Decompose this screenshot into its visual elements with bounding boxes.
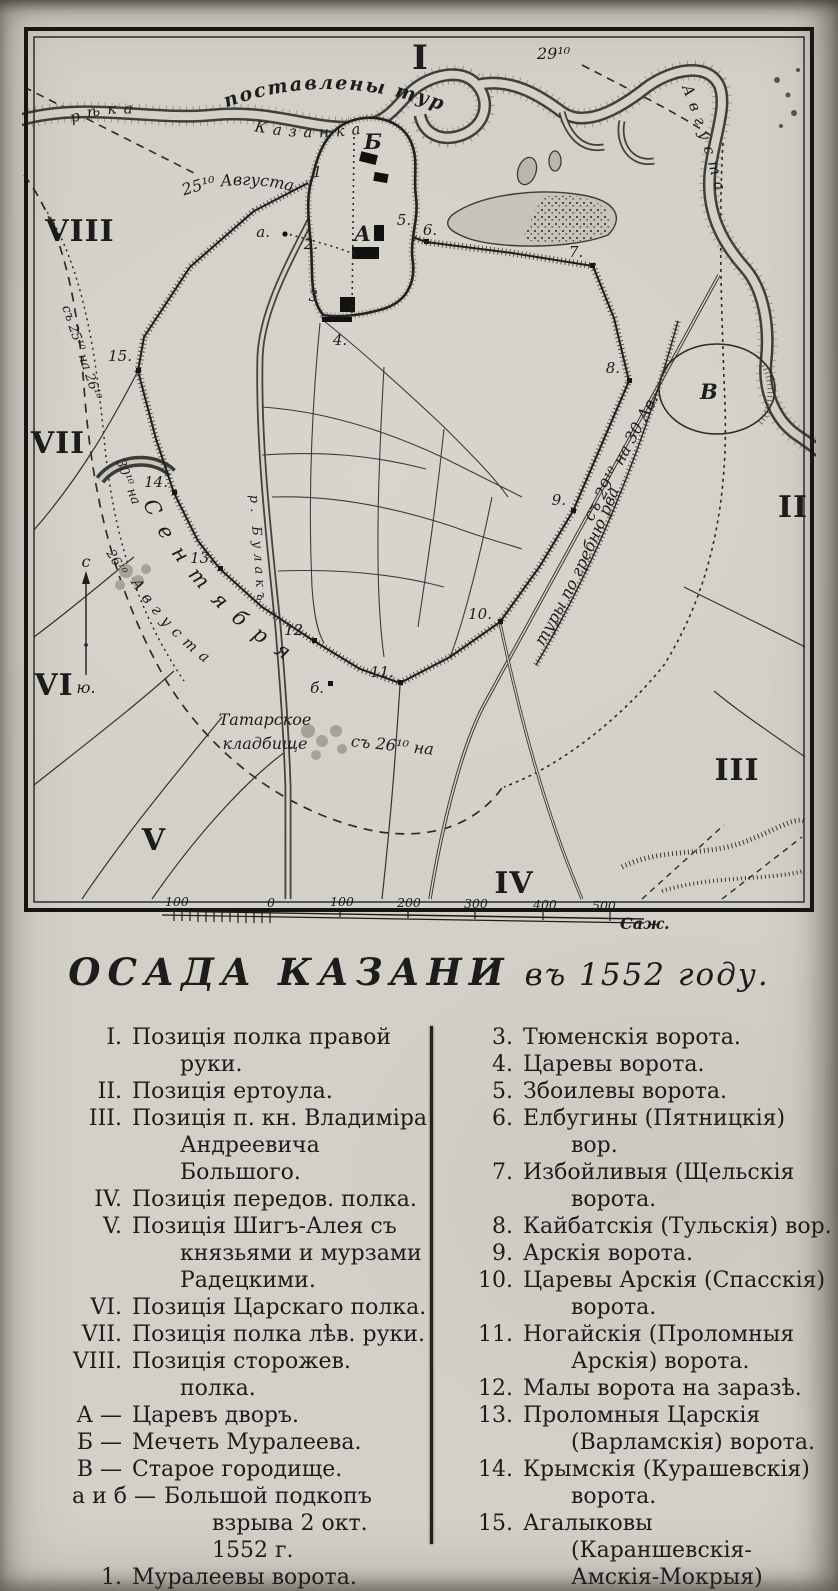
legend-item-text: Позиція ертоула. xyxy=(122,1078,333,1105)
legend-item-key: 14. xyxy=(447,1456,513,1510)
legend-item-key: III. xyxy=(56,1105,122,1186)
gate-4: 4. xyxy=(332,331,347,349)
gate-11: 11. xyxy=(370,663,394,681)
mark-mine-a: а. xyxy=(256,223,270,241)
siege-map: поставлены туры рѣка Казанка 29¹⁰ Август… xyxy=(22,25,816,940)
legend-item: 14.Крымскія (Курашевскія) ворота. xyxy=(447,1456,838,1510)
scale-tick-0: 0 xyxy=(267,895,275,910)
gate-5: 5. xyxy=(397,211,411,229)
legend-item: а и б —Большой подкопъ взрыва 2 окт. 155… xyxy=(56,1483,430,1564)
legend-item-text: Позиція п. кн. Владиміра Андреевича Боль… xyxy=(122,1105,430,1186)
legend-item-key: 8. xyxy=(447,1213,513,1240)
legend-item-key: Б — xyxy=(56,1429,122,1456)
gate-6: 6. xyxy=(423,221,437,239)
legend-item: 11.Ногайскія (Проломныя Арскія) ворота. xyxy=(447,1321,838,1375)
legend: I.Позиція полка правой руки.II.Позиція е… xyxy=(56,1024,838,1591)
scale-tick-500: 500 xyxy=(592,898,616,913)
legend-item-text: Царевы ворота. xyxy=(513,1051,705,1078)
legend-item: VIII.Позиція сторожев. полка. xyxy=(56,1348,430,1402)
legend-item-text: Арскія ворота. xyxy=(513,1240,693,1267)
legend-item: 7.Избойливыя (Щельскія ворота. xyxy=(447,1159,838,1213)
label-postavleny-tury: поставлены туры xyxy=(22,25,449,115)
legend-item-key: I. xyxy=(56,1024,122,1078)
legend-item-text: Ногайскія (Проломныя Арскія) ворота. xyxy=(513,1321,838,1375)
svg-text:поставлены туры: поставлены туры xyxy=(22,25,449,115)
gate-3: 3 xyxy=(308,287,318,305)
mark-V: В xyxy=(699,379,718,404)
legend-item-text: Малы ворота на заразѣ. xyxy=(513,1375,802,1402)
legend-item: V.Позиція Шигъ-Алея съ князьями и мурзам… xyxy=(56,1213,430,1294)
legend-item-text: Избойливыя (Щельскія ворота. xyxy=(513,1159,838,1213)
numeral-VIII: VIII xyxy=(44,214,114,249)
label-tatar-cemetery-2: кладбище xyxy=(223,734,308,753)
legend-item: 3.Тюменскія ворота. xyxy=(447,1024,838,1051)
legend-item-key: 3. xyxy=(447,1024,513,1051)
gate-13: 13. xyxy=(190,549,214,567)
legend-item: VI.Позиція Царскаго полка. xyxy=(56,1294,430,1321)
svg-text:съ 29¹⁰ на 30 Ав.: съ 29¹⁰ на 30 Ав. xyxy=(579,391,662,524)
label-reka: рѣка xyxy=(68,99,141,126)
numeral-V: V xyxy=(141,823,166,858)
legend-item: I.Позиція полка правой руки. xyxy=(56,1024,430,1078)
legend-item-text: Позиція сторожев. полка. xyxy=(122,1348,430,1402)
label-date-29: 29¹⁰ xyxy=(536,44,571,63)
legend-right: 3.Тюменскія ворота.4.Царевы ворота.5.Збо… xyxy=(433,1024,838,1591)
gate-1: 1 xyxy=(312,163,322,181)
legend-item: 1.Муралеевы ворота. xyxy=(56,1564,430,1591)
scale-tick-100l: 100 xyxy=(165,894,189,909)
gate-10: 10. xyxy=(468,605,492,623)
scale-unit: Саж. xyxy=(620,914,670,933)
legend-item-key: IV. xyxy=(56,1186,122,1213)
legend-item-key: 6. xyxy=(447,1105,513,1159)
mark-mine-b: б. xyxy=(310,679,324,697)
scale-bar: 100 0 100 200 300 400 500 Саж. xyxy=(162,894,670,933)
scale-tick-200: 200 xyxy=(396,895,421,910)
page-title-main: ОСАДА КАЗАНИ xyxy=(68,950,510,994)
gate-8: 8. xyxy=(606,359,620,377)
legend-item-text: Крымскія (Курашевскія) ворота. xyxy=(513,1456,838,1510)
legend-item-text: Большой подкопъ взрыва 2 окт. 1552 г. xyxy=(156,1483,430,1564)
gate-14: 14. xyxy=(144,473,168,491)
page-title-year: въ 1552 году. xyxy=(511,957,770,993)
gate-12: 12. xyxy=(284,621,308,639)
legend-item: 12.Малы ворота на заразѣ. xyxy=(447,1375,838,1402)
legend-item-key: II. xyxy=(56,1078,122,1105)
legend-item-text: Агалыковы (Караншевскія-Амскія-Мокрыя) в… xyxy=(513,1510,838,1591)
legend-left: I.Позиція полка правой руки.II.Позиція е… xyxy=(56,1024,430,1591)
legend-item-key: 5. xyxy=(447,1078,513,1105)
legend-item-text: Позиція Царскаго полка. xyxy=(122,1294,426,1321)
legend-item-key: а и б — xyxy=(56,1483,156,1564)
scale-tick-400: 400 xyxy=(532,897,557,912)
label-sentyabrya: Сентября xyxy=(138,495,307,672)
gate-7: 7. xyxy=(569,243,583,261)
legend-item-text: Кайбатскія (Тульскія) вор. xyxy=(513,1213,832,1240)
kremlin xyxy=(282,118,416,686)
legend-item: В —Старое городище. xyxy=(56,1456,430,1483)
compass-south-label: ю. xyxy=(76,678,95,697)
moat-tury-line xyxy=(536,321,775,665)
legend-item-text: Позиція Шигъ-Алея съ князьями и мурзами … xyxy=(122,1213,430,1294)
legend-item-text: Муралеевы ворота. xyxy=(122,1564,357,1591)
legend-item-key: 10. xyxy=(447,1267,513,1321)
scale-tick-100: 100 xyxy=(330,894,354,909)
page-title: ОСАДА КАЗАНИвъ 1552 году. xyxy=(0,950,838,994)
legend-item-key: 4. xyxy=(447,1051,513,1078)
legend-item-text: Проломныя Царскія (Варламскія) ворота. xyxy=(513,1402,838,1456)
legend-item-text: Мечеть Муралеева. xyxy=(122,1429,361,1456)
legend-item-key: 9. xyxy=(447,1240,513,1267)
legend-item-key: 11. xyxy=(447,1321,513,1375)
label-s-29-na-30: съ 29¹⁰ на 30 Ав. xyxy=(579,391,662,524)
legend-item-key: 15. xyxy=(447,1510,513,1591)
legend-item: III.Позиція п. кн. Владиміра Андреевича … xyxy=(56,1105,430,1186)
scanned-book-page: поставлены туры рѣка Казанка 29¹⁰ Август… xyxy=(0,0,838,1591)
legend-item: VII.Позиція полка лѣв. руки. xyxy=(56,1321,430,1348)
legend-item: 13.Проломныя Царскія (Варламскія) ворота… xyxy=(447,1402,838,1456)
svg-text:25¹⁰ Августа: 25¹⁰ Августа xyxy=(178,170,296,200)
legend-item-key: V. xyxy=(56,1213,122,1294)
legend-item: 6.Елбугины (Пятницкія) вор. xyxy=(447,1105,838,1159)
legend-item: 10.Царевы Арскія (Спасскія) ворота. xyxy=(447,1267,838,1321)
legend-item-text: Тюменскія ворота. xyxy=(513,1024,741,1051)
gate-2: 2. xyxy=(303,235,318,253)
svg-text:съ 25¹⁰ на 26¹⁰: съ 25¹⁰ на 26¹⁰ xyxy=(58,303,104,402)
legend-item: А —Царевъ дворъ. xyxy=(56,1402,430,1429)
gate-9: 9. xyxy=(552,491,566,509)
legend-item: 5.Збоилевы ворота. xyxy=(447,1078,838,1105)
numeral-VI: VI xyxy=(33,668,73,703)
legend-item: 4.Царевы ворота. xyxy=(447,1051,838,1078)
numeral-I: I xyxy=(412,38,428,78)
mark-B: Б xyxy=(363,129,382,154)
legend-item: 9.Арскія ворота. xyxy=(447,1240,838,1267)
legend-item-key: 1. xyxy=(56,1564,122,1591)
label-west-dates: съ 25¹⁰ на 26¹⁰ xyxy=(58,303,104,402)
legend-item: 8.Кайбатскія (Тульскія) вор. xyxy=(447,1213,838,1240)
legend-item-text: Старое городище. xyxy=(122,1456,342,1483)
gate-15: 15. xyxy=(108,347,132,365)
legend-item-text: Позиція полка лѣв. руки. xyxy=(122,1321,425,1348)
svg-text:съ 26¹⁰ на: съ 26¹⁰ на xyxy=(350,731,435,758)
legend-item-key: VIII. xyxy=(56,1348,122,1402)
compass-north-label: с xyxy=(82,552,91,571)
label-s-26-na: съ 26¹⁰ на xyxy=(350,731,435,758)
label-tury-grebnyu: туры по гребню рва xyxy=(530,484,622,648)
legend-item-text: Позиція передов. полка. xyxy=(122,1186,417,1213)
compass: с ю. xyxy=(76,552,95,697)
scale-tick-300: 300 xyxy=(464,896,488,911)
legend-item-key: 7. xyxy=(447,1159,513,1213)
legend-item-text: Царевы Арскія (Спасскія) ворота. xyxy=(513,1267,838,1321)
numeral-III: III xyxy=(714,753,759,788)
svg-text:туры по гребню рва: туры по гребню рва xyxy=(530,484,622,648)
legend-item-text: Позиція полка правой руки. xyxy=(122,1024,430,1078)
legend-item: 15.Агалыковы (Караншевскія-Амскія-Мокрыя… xyxy=(447,1510,838,1591)
legend-item-key: В — xyxy=(56,1456,122,1483)
label-25-avgusta: 25¹⁰ Августа xyxy=(178,170,296,200)
legend-item-text: Збоилевы ворота. xyxy=(513,1078,727,1105)
legend-item: Б —Мечеть Муралеева. xyxy=(56,1429,430,1456)
svg-text:рѣка: рѣка xyxy=(68,99,141,126)
legend-item-text: Елбугины (Пятницкія) вор. xyxy=(513,1105,838,1159)
legend-item-key: VI. xyxy=(56,1294,122,1321)
legend-item-key: 13. xyxy=(447,1402,513,1456)
numeral-IV: IV xyxy=(494,866,533,901)
legend-item-key: А — xyxy=(56,1402,122,1429)
map-frame xyxy=(26,29,812,910)
legend-item-key: 12. xyxy=(447,1375,513,1402)
legend-item-key: VII. xyxy=(56,1321,122,1348)
numeral-VII: VII xyxy=(30,426,85,461)
legend-item-text: Царевъ дворъ. xyxy=(122,1402,299,1429)
mark-A: А xyxy=(352,221,371,246)
svg-text:Сентября: Сентября xyxy=(138,495,307,672)
label-tatar-cemetery-1: Татарское xyxy=(219,710,312,729)
legend-item: II.Позиція ертоула. xyxy=(56,1078,430,1105)
legend-item: IV.Позиція передов. полка. xyxy=(56,1186,430,1213)
